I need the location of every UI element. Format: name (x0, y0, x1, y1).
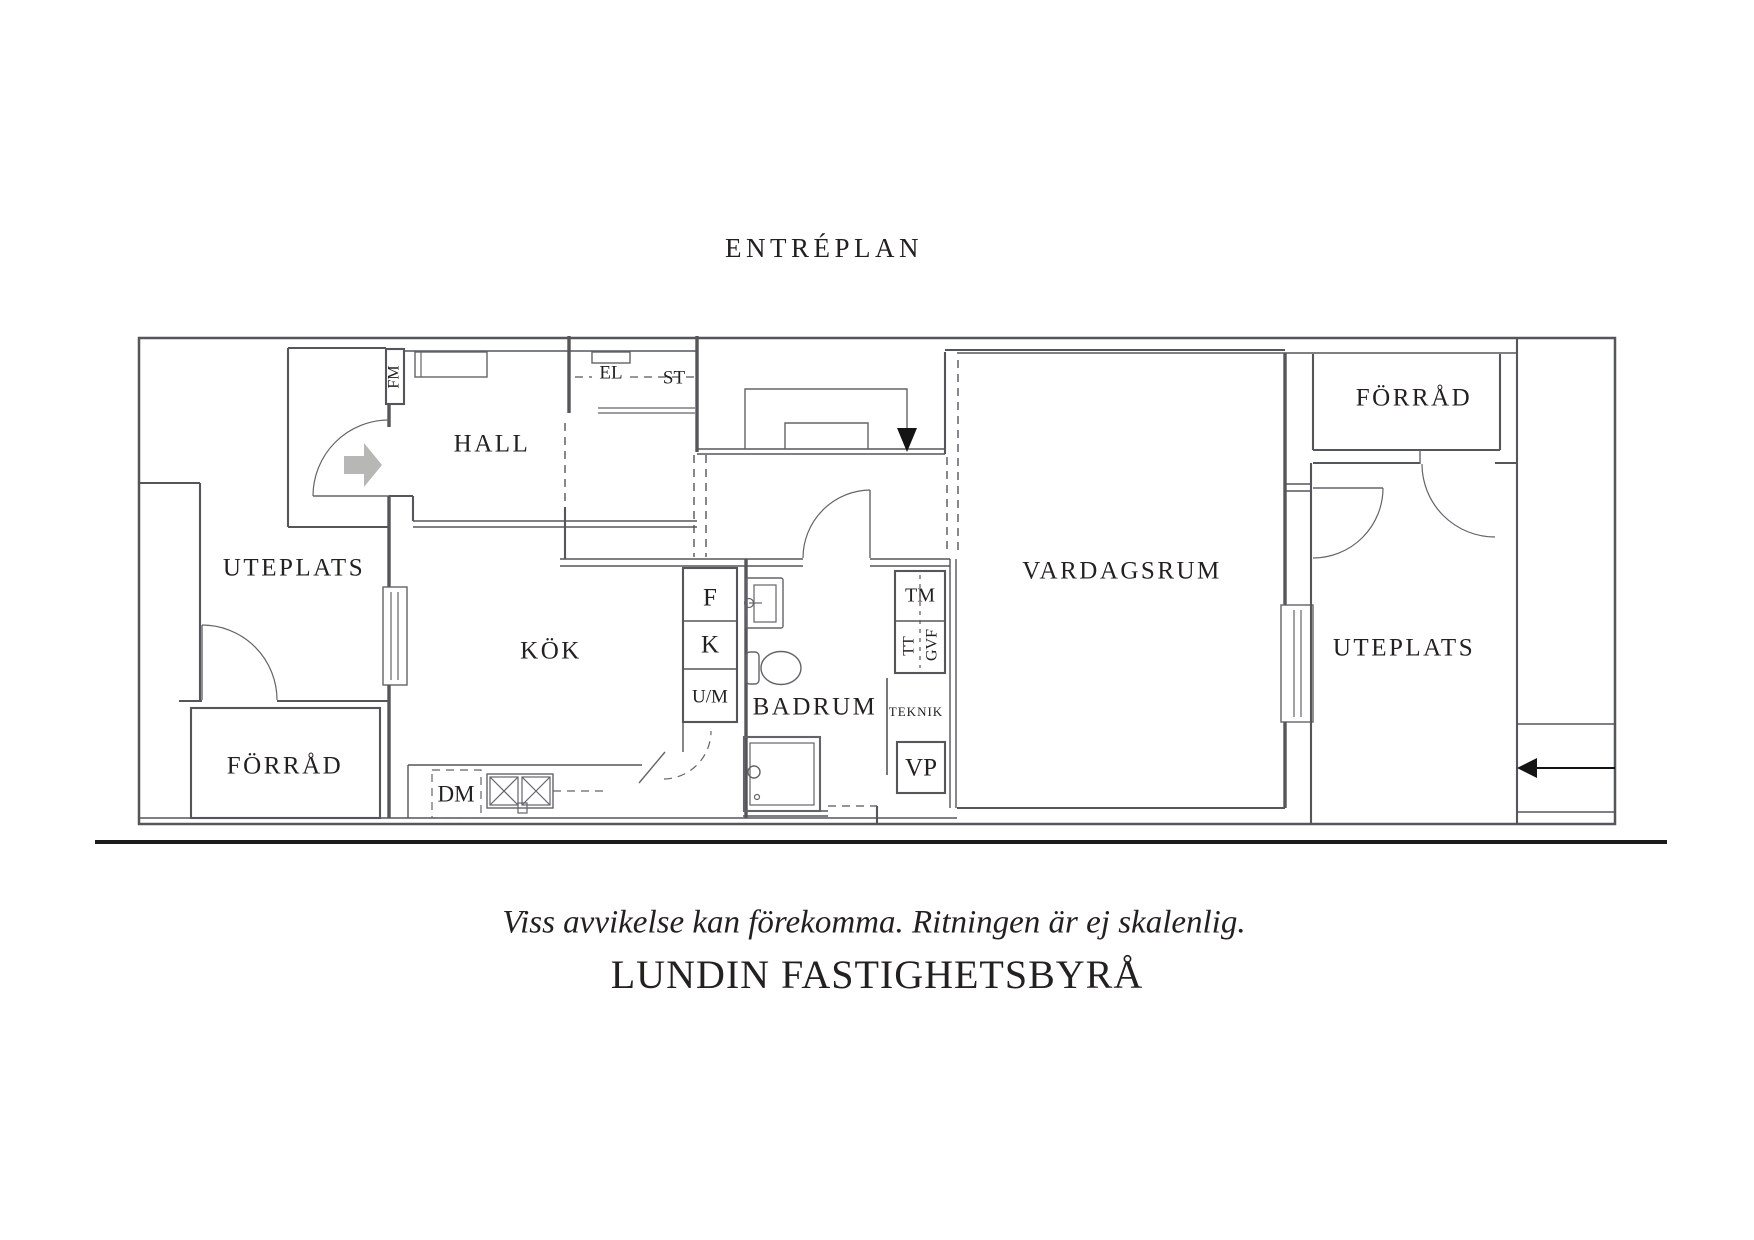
living-room-window (1281, 605, 1313, 722)
st-label: ST (663, 367, 686, 388)
uteplats-right-label: UTEPLATS (1333, 635, 1475, 662)
kitchen-sink (487, 774, 553, 813)
room-labels: HALL UTEPLATS FÖRRÅD KÖK BADRUM VARDAGSR… (223, 385, 1475, 780)
brand-text: LUNDIN FASTIGHETSBYRÅ (611, 952, 1143, 997)
um-label: U/M (692, 686, 728, 707)
el-st-closet (569, 336, 697, 452)
gvf-label: GVF (924, 629, 941, 661)
tm-label: TM (905, 585, 935, 607)
shower (744, 737, 820, 811)
fridge-label: F (703, 585, 717, 612)
left-storage-door (202, 625, 277, 700)
fm-label: FM (386, 365, 403, 388)
bathroom-door (803, 490, 870, 558)
right-storage-terrace (1313, 354, 1517, 537)
el-label: EL (599, 362, 622, 383)
floor-plan-drawing: ENTRÉPLAN FM (0, 0, 1754, 1240)
outdoor-stairs (1517, 338, 1615, 823)
footer-rule (95, 840, 1667, 844)
el-box (592, 352, 630, 363)
tt-label: TT (901, 636, 918, 656)
freezer-label: K (701, 632, 719, 659)
kitchen-window (383, 587, 407, 685)
toilet (746, 652, 801, 685)
dm-label: DM (437, 781, 474, 806)
uteplats-left-label: UTEPLATS (223, 555, 365, 582)
hall-wardrobe (415, 352, 487, 377)
right-storage-door (1420, 450, 1495, 537)
kok-label: KÖK (520, 638, 582, 665)
entry-and-left-terrace: FM (139, 348, 407, 818)
plan-title: ENTRÉPLAN (725, 233, 923, 263)
hall-label: HALL (454, 431, 531, 458)
washbasin (745, 578, 784, 628)
forrad-left-label: FÖRRÅD (227, 753, 343, 780)
badrum-label: BADRUM (753, 694, 878, 721)
entry-arrow-icon (344, 443, 382, 487)
teknik-label: TEKNIK (889, 704, 943, 719)
vardagsrum-label: VARDAGSRUM (1022, 558, 1222, 585)
vp-label: VP (905, 755, 937, 782)
hall (389, 352, 697, 559)
staircase (694, 352, 958, 557)
forrad-right-label: FÖRRÅD (1356, 385, 1472, 412)
exit-arrow-icon (1517, 758, 1537, 778)
terrace-door (1313, 488, 1383, 558)
floor-plan-page: ENTRÉPLAN FM (0, 0, 1754, 1240)
left-storage (179, 625, 389, 818)
kitchen-appliance-column (639, 568, 737, 783)
disclaimer-text: Viss avvikelse kan förekomma. Ritningen … (502, 905, 1245, 941)
living-room-walls (945, 350, 1383, 823)
